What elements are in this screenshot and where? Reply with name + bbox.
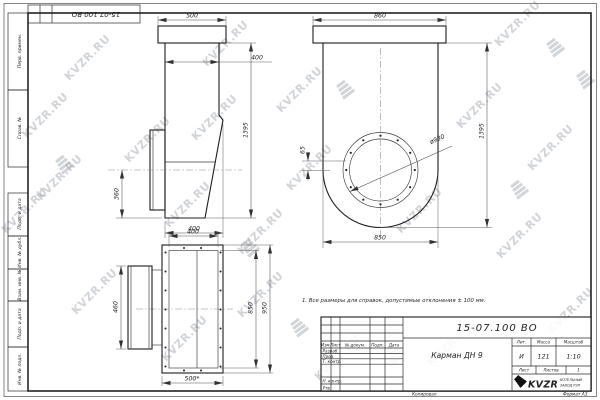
tb-header-podp: Подп. bbox=[371, 342, 383, 347]
corner-stamp-doc-number: 15-07.100 ВО bbox=[71, 10, 120, 18]
margin-label: Взам. инв. № bbox=[17, 269, 23, 300]
tb-mass-value: 121 bbox=[537, 353, 549, 361]
tb-role-ncontrol: Н. контр. bbox=[323, 379, 343, 384]
tb-sheet-label: Лист bbox=[518, 367, 530, 372]
tb-logo-text: KVZR bbox=[528, 380, 558, 391]
dim-label: 500* bbox=[185, 376, 200, 383]
tb-header-list: Лист bbox=[329, 342, 341, 347]
dim-label: 1395 bbox=[243, 122, 250, 138]
copied-label: Копировал bbox=[412, 392, 437, 398]
tb-role-developed: Разраб. bbox=[323, 348, 339, 353]
drawing-sheet: KVZR.RU KVZR.RU KVZR.RU KVZR.RU KVZR.RU … bbox=[0, 0, 600, 400]
tb-doc-number: 15-07.100 ВО bbox=[456, 323, 537, 334]
dim-label: 500 bbox=[186, 13, 198, 20]
margin-label: Подп. и дата bbox=[17, 308, 23, 339]
dim-label: 400 bbox=[187, 229, 199, 236]
tb-scale-label: Масштаб bbox=[564, 340, 584, 345]
margin-label: Инв. № подл. bbox=[17, 353, 23, 385]
dim-label: 400 bbox=[251, 55, 263, 62]
format-label: Формат А3 bbox=[563, 392, 588, 398]
tb-header-date: Дата bbox=[388, 342, 400, 347]
tb-mass-label: Масса bbox=[537, 340, 551, 345]
tb-lit-value: И bbox=[519, 353, 524, 361]
margin-label: Справ. № bbox=[17, 117, 23, 140]
title-block: Изм. Лист № докум. Подп. Дата Разраб. Пр… bbox=[321, 317, 591, 398]
margin-label: Инв. № дубл. bbox=[17, 236, 23, 267]
tb-company-line1: КОТЕЛЬНЫЙ bbox=[560, 377, 582, 382]
note-text: 1. Все размеры для справок, допустимые о… bbox=[302, 298, 485, 304]
dim-label: 860 bbox=[374, 13, 386, 20]
tb-sheets-label: Листов bbox=[542, 367, 559, 372]
margin-label: Подп. и дата bbox=[17, 198, 23, 229]
tb-header-doc: № докум. bbox=[344, 342, 365, 347]
dim-label: 950 bbox=[262, 302, 269, 314]
tb-sheets-value: 1 bbox=[577, 367, 580, 372]
tb-scale-value: 1:10 bbox=[566, 353, 580, 361]
dim-label: 1395 bbox=[479, 123, 486, 139]
tb-role-approved: Утв. bbox=[323, 385, 332, 390]
tb-part-name: Карман ДН 9 bbox=[431, 351, 483, 360]
tb-role-checked: Пров. bbox=[323, 354, 335, 359]
tb-lit-label: Лит. bbox=[516, 340, 526, 345]
dim-label: 360 bbox=[114, 188, 121, 200]
tb-company-line2: ЗАВОД РЭП bbox=[560, 384, 581, 388]
engineering-drawing: KVZR.RU KVZR.RU KVZR.RU KVZR.RU KVZR.RU … bbox=[0, 0, 600, 400]
dim-label: 65 bbox=[300, 146, 307, 154]
tb-role-tcontrol: Т. контр. bbox=[323, 359, 342, 364]
dim-label: 850 bbox=[374, 235, 386, 242]
dim-label: 850 bbox=[248, 302, 255, 314]
margin-label: Перв. примен. bbox=[17, 34, 23, 69]
dim-label: 460 bbox=[113, 301, 120, 313]
